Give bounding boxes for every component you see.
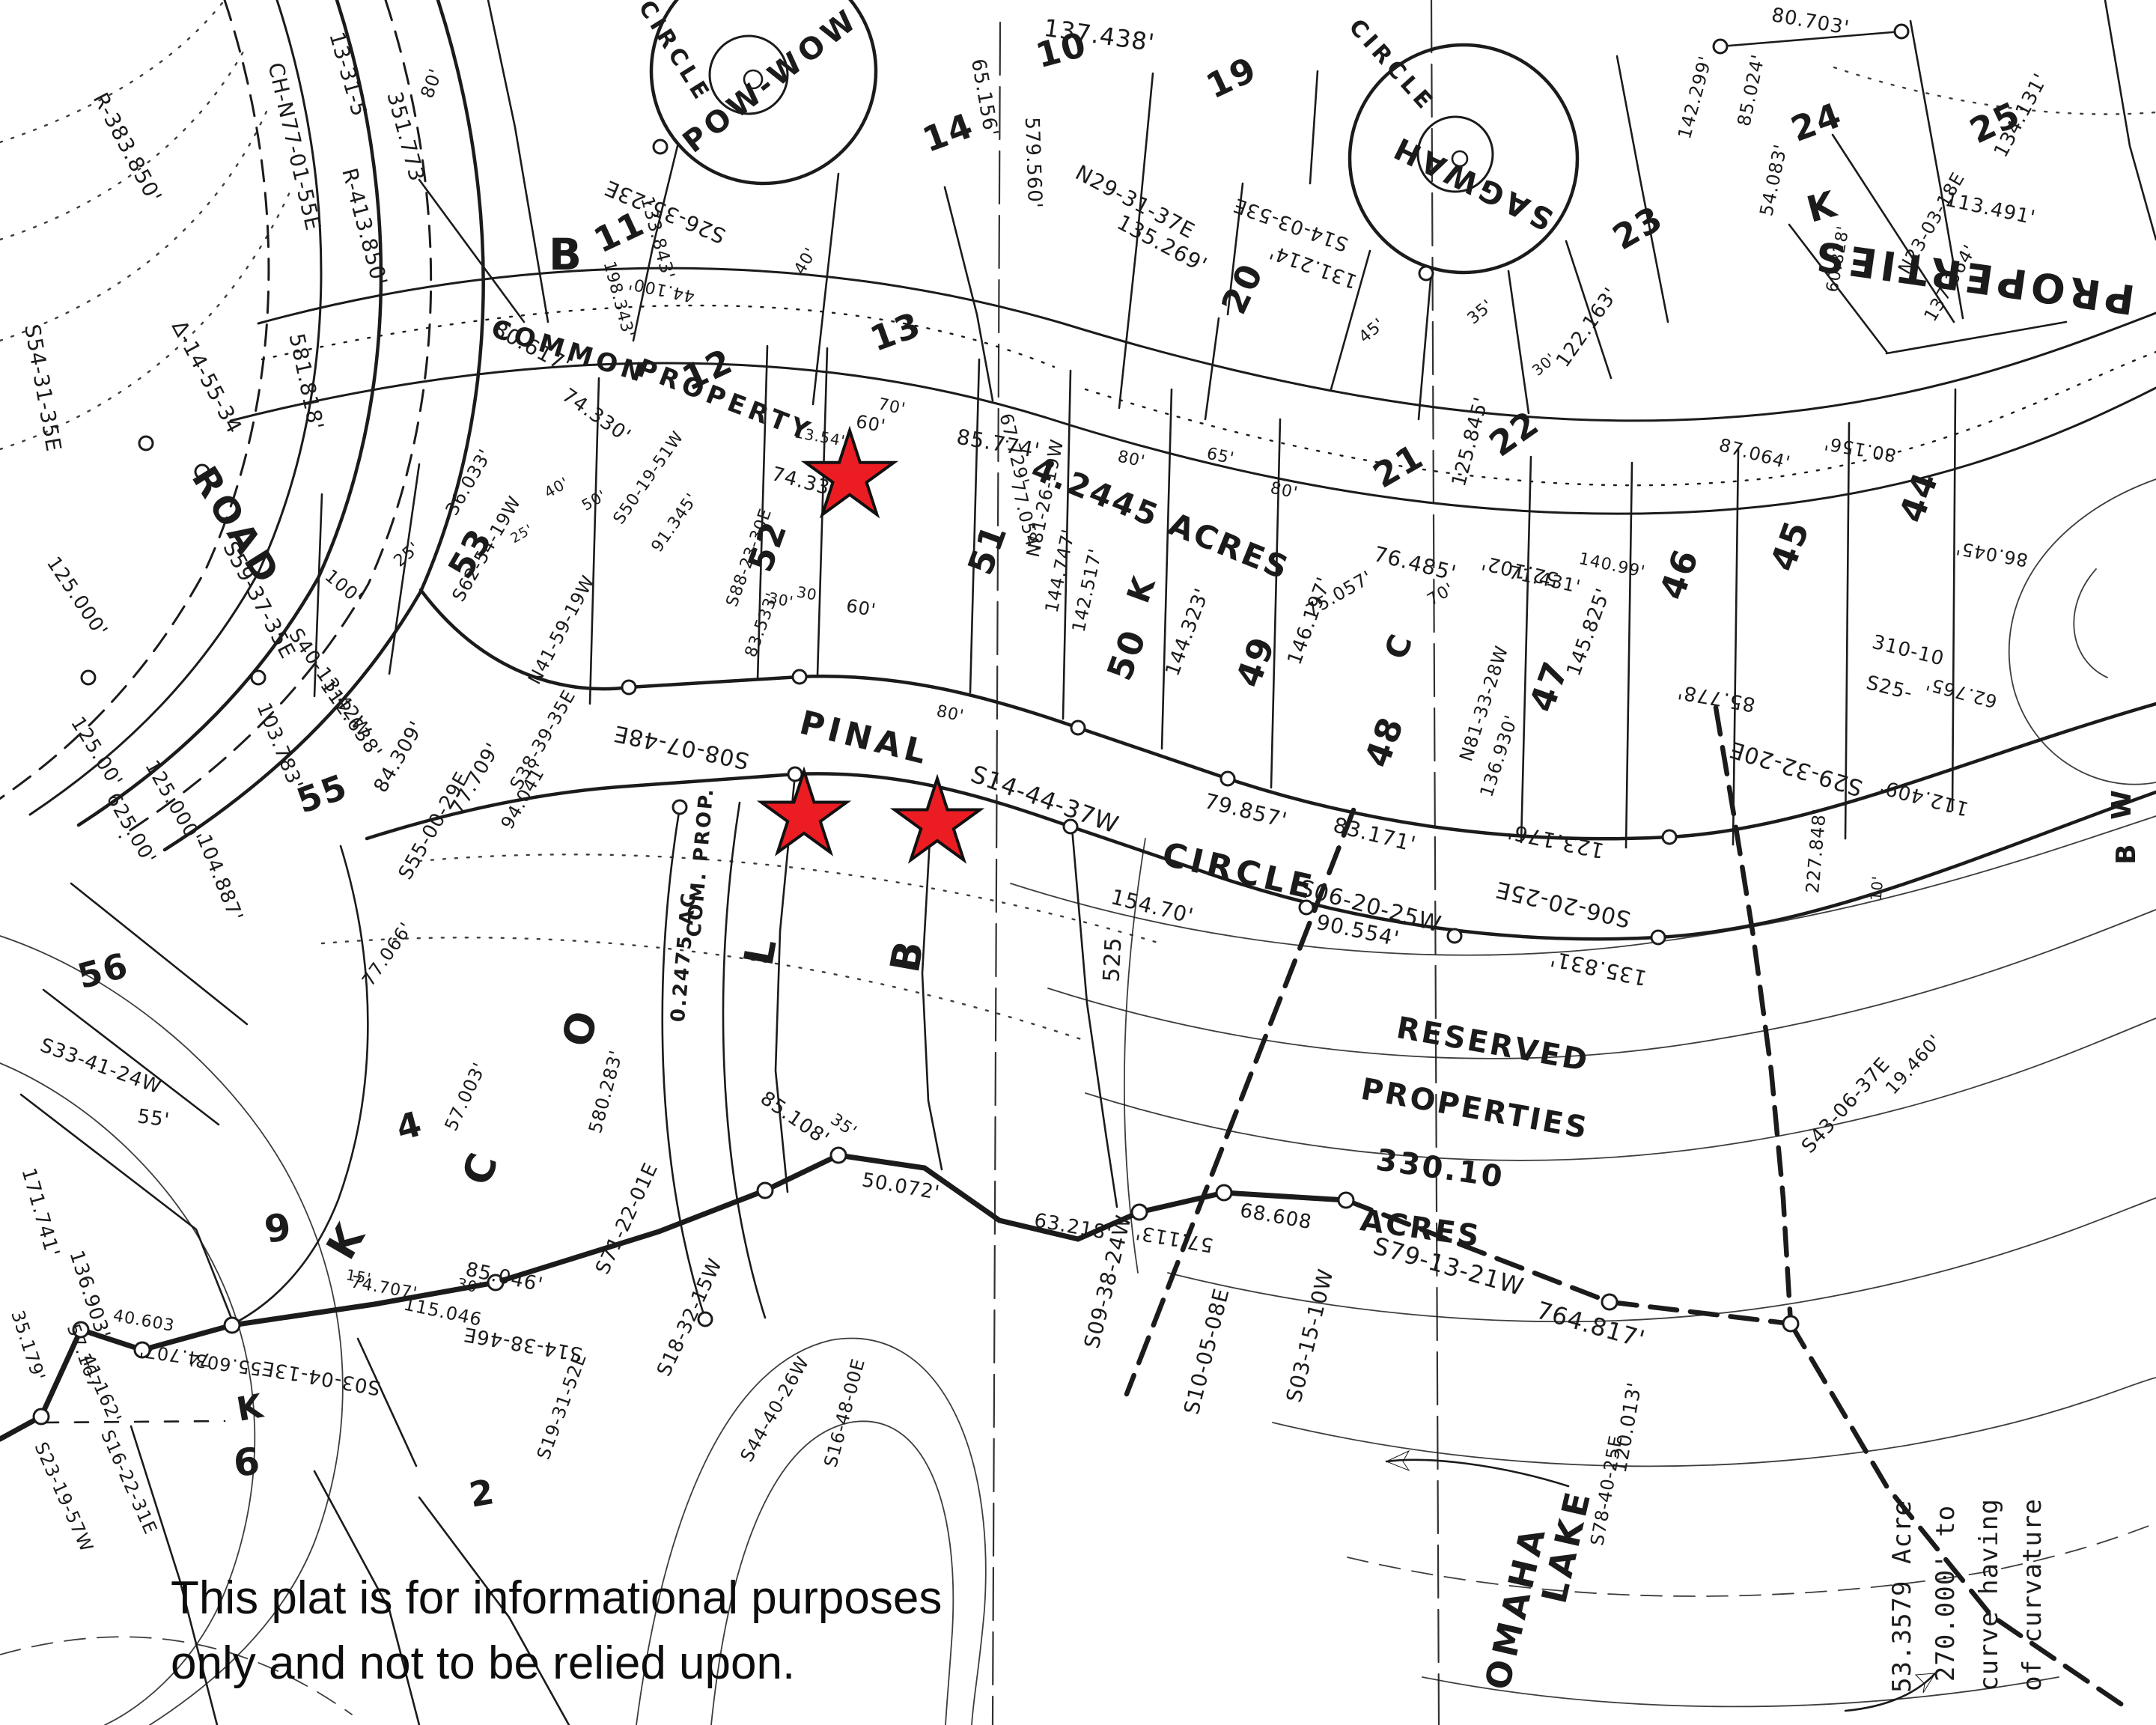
bearing-label: 580.283' [585, 1047, 627, 1135]
bearing-label: 85.024' [1733, 52, 1769, 128]
street-label: PROPERTIES [1808, 231, 2137, 323]
vertex-circle [139, 436, 153, 450]
lot-label: 13 [865, 304, 926, 359]
contour [322, 937, 1085, 1041]
lot-label: 6 [232, 1440, 264, 1485]
block-label: K [234, 1387, 267, 1429]
bearing-label: 144.323' [1161, 585, 1213, 679]
disclaimer-text: This plat is for informational purposes … [171, 1566, 1106, 1697]
bearing-label: 50' [579, 486, 609, 514]
bearing-label: 154.70' [1109, 884, 1196, 928]
lot-line [1205, 318, 1219, 419]
common-property-corridor [231, 268, 2156, 514]
bearing-label: 198.343' [600, 259, 638, 340]
bearing-label: 30' [795, 582, 823, 605]
street-label: CIRCLE [633, 0, 716, 107]
bearing-label: R-383.850' [88, 88, 167, 207]
vertex-circle [1783, 1316, 1798, 1331]
bearing-label: 84.309' [370, 717, 429, 797]
lot-label: 9 [261, 1205, 296, 1253]
bearing-label: 13-31-5 [324, 29, 372, 120]
lot-line [1271, 419, 1280, 788]
bearing-label: S14-38-46E [462, 1322, 585, 1365]
star-markers [761, 431, 980, 860]
bearing-label: 122.163' [1552, 284, 1623, 372]
lot-label: 45 [1762, 514, 1818, 576]
bearing-label: 80.156' [1822, 433, 1898, 466]
lot-label: 14 [917, 105, 978, 160]
vertex-circle [831, 1148, 846, 1163]
street-label: PINAL [796, 704, 934, 773]
culdesac-sagwah [1350, 45, 1577, 273]
bearing-label: 227.848' [1802, 807, 1830, 894]
lot-line [723, 803, 765, 1318]
vertex-circle [1132, 1205, 1147, 1220]
bearing-label: 35.179' [7, 1308, 49, 1384]
bearing-label: 45' [1356, 315, 1389, 347]
block-label: C [1377, 628, 1420, 664]
disclaimer-line-2: only and not to be relied upon. [171, 1631, 1106, 1697]
vertex-circle [622, 681, 636, 694]
vertex-circle [673, 800, 686, 814]
bearing-label: 10' [1867, 874, 1887, 901]
bearing-label: S43-06-37E [1797, 1053, 1895, 1158]
street-label: SAGWAH [1385, 128, 1559, 237]
bearing-label: 83.533' [742, 590, 782, 660]
block-label: L [735, 934, 786, 969]
contour [419, 854, 1160, 943]
bearing-label: 125.000' [42, 553, 112, 641]
block-label: K [317, 1215, 375, 1268]
lot-line [1720, 31, 1901, 46]
arrow-line [1386, 1460, 1568, 1486]
lot-label: 51 [960, 518, 1015, 579]
culdesac-ring [1350, 45, 1577, 273]
bearing-label: 13.54' [793, 423, 847, 450]
area-label: PROPERTIES [1359, 1072, 1592, 1146]
bearing-label: S19-31-52E [533, 1350, 591, 1462]
street-label: CIRCLE [1344, 14, 1440, 118]
lot-line [1508, 271, 1529, 413]
star-marker [895, 779, 980, 860]
bearing-label: 80' [416, 66, 446, 101]
typed-label: of curvature [2018, 1498, 2047, 1691]
lot-label: 44 [1891, 466, 1946, 527]
bearing-label: CH-N77-01-55E [263, 60, 326, 233]
lot-label: 48 [1356, 711, 1412, 772]
bearing-label: 77.066' [358, 918, 417, 990]
bearing-label: 91.345' [648, 490, 702, 556]
bearing-label: Δ-14-55-34 [167, 316, 247, 437]
vertex-circle [225, 1318, 240, 1333]
bearing-label: S33-41-24W [37, 1034, 165, 1098]
lot-line [1310, 71, 1318, 183]
bearing-label: 625.00' [102, 789, 161, 868]
bearing-label: 19.460' [1881, 1030, 1946, 1098]
bearing-label: S71-22-01E [591, 1159, 663, 1278]
bearing-label: 62.765' [1923, 673, 2000, 712]
vertex-circle [1651, 931, 1665, 944]
contour [1048, 910, 2156, 1059]
vertex-circle [1221, 772, 1234, 785]
lot-label: 24 [1785, 94, 1847, 150]
bearing-label: S16-22-31E [97, 1427, 161, 1538]
bearing-label: 65' [1205, 445, 1236, 469]
bearing-label: S16-48-00E [820, 1356, 869, 1470]
typed-label: 270.000' to [1931, 1505, 1961, 1682]
vertex-circle [654, 140, 667, 153]
bearing-label: S06-20-25E [1493, 875, 1633, 932]
lot-label: 56 [73, 945, 133, 997]
vertex-circle [1895, 25, 1908, 38]
bearing-label: 80' [935, 702, 966, 726]
block-label: C [453, 1146, 508, 1191]
bearing-label: 54.083' [1755, 142, 1791, 218]
lot-line [419, 180, 524, 322]
vertex-circle [1448, 929, 1461, 943]
block-label: K [1119, 571, 1163, 607]
bearing-label: 60' [854, 411, 887, 437]
lot-line [1617, 56, 1668, 322]
disclaimer-line-1: This plat is for informational purposes [171, 1566, 1106, 1631]
bearing-label: 60' [844, 595, 877, 621]
lot-label: 4 [392, 1103, 427, 1149]
bearing-label: S18-32-15W [653, 1255, 727, 1380]
star-marker [761, 771, 847, 853]
bearing-label: S78-40-25E [1586, 1434, 1627, 1548]
corridor-edge [231, 363, 2156, 514]
block-label: B [549, 229, 583, 280]
vertex-circle [758, 1183, 773, 1198]
lot-line [488, 0, 548, 322]
lot-line [1626, 463, 1632, 848]
block-label: K [1803, 183, 1842, 231]
bearing-label: 25' [391, 539, 424, 571]
bearing-label: S29-32-20E [1726, 735, 1866, 800]
bearing-label: 125.000' [140, 756, 205, 847]
area-label: 0.2475 AC. [667, 880, 701, 1023]
bearing-label: S03-15-10W [1282, 1266, 1339, 1405]
bearing-label: 351.773 [382, 89, 430, 184]
bearing-label: 40.603 [112, 1306, 176, 1336]
vertex-circle [788, 767, 802, 781]
lot-line [358, 1339, 416, 1466]
bearing-label: 310-10 [1870, 631, 1946, 671]
vertex-circle [1602, 1294, 1617, 1309]
street-label: OMAHA [1477, 1521, 1554, 1694]
plat-linework: POW-WOWCIRCLESAGWAHCIRCLEROADPINALCIRCLE… [0, 0, 2156, 1725]
bearing-label: 100' [321, 565, 367, 609]
lot-label: 46 [1651, 543, 1707, 604]
vertex-circle [1216, 1185, 1231, 1200]
bearing-label: 40' [541, 473, 572, 502]
bearing-label: 85.108' [756, 1087, 833, 1151]
bearing-label: 57.113' [1133, 1220, 1215, 1256]
lake-shoreline [2074, 569, 2107, 678]
typed-label: curve having [1974, 1498, 2004, 1691]
bearing-label: S54-31-35E [19, 323, 66, 454]
bearing-label: 112.409' [1877, 774, 1971, 820]
bearing-label: 55' [136, 1105, 171, 1132]
bearing-label: 57.003' [440, 1059, 490, 1134]
lot-label: 2 [466, 1471, 499, 1515]
bearing-label: S10-05-08E [1179, 1286, 1234, 1417]
lot-line [945, 187, 993, 401]
lot-line [1952, 389, 1955, 810]
vertex-circle [34, 1409, 49, 1424]
plat-map: POW-WOWCIRCLESAGWAHCIRCLEROADPINALCIRCLE… [0, 0, 2156, 1725]
bearing-label: 140.99' [1577, 550, 1647, 582]
lot-line [1886, 322, 2066, 353]
lot-line [21, 1095, 234, 1324]
bearing-label: 171.741' [16, 1166, 64, 1260]
bearing-label: 525 [1098, 936, 1127, 982]
bearing-label: 80.703' [1770, 4, 1851, 40]
bearing-label: 123.176' [1505, 818, 1606, 863]
lot-label: 21 [1366, 436, 1431, 496]
block-label: B [881, 936, 934, 976]
lake-shoreline [2009, 479, 2156, 785]
lot-line [1419, 271, 1431, 419]
bearing-label: 104.887' [192, 832, 248, 925]
lot-label: 50 [1099, 624, 1154, 685]
section-line [1431, 0, 1439, 1725]
bearing-label: 41.162' [77, 1351, 126, 1426]
bearing-label: R-413.850' [337, 165, 392, 289]
bearing-label: S08-07-48E [611, 719, 751, 774]
bearing-label: 15' [344, 1265, 373, 1288]
block-label: B [2111, 842, 2142, 864]
street-label: CIRCLE [1159, 836, 1320, 908]
bearing-label: 76.485' [1371, 541, 1459, 585]
lot-label: 22 [1482, 402, 1547, 464]
bearing-label: 145.825' [1562, 585, 1615, 679]
lot-label: 23 [1606, 198, 1670, 258]
bearing-label: 125.00' [66, 713, 127, 791]
bearing-label: S03-04-13E [260, 1356, 383, 1399]
vertex-circle [82, 671, 95, 684]
vertex-circle [252, 671, 265, 684]
bearing-label: 135.831' [1547, 946, 1648, 991]
vertex-circle [1663, 830, 1676, 844]
bearing-label: 36.033' [442, 445, 496, 520]
bearing-label: 80' [1116, 448, 1147, 472]
boundary-line [0, 1155, 1346, 1439]
bearing-label: 83.171' [1331, 812, 1419, 857]
lot-line [1162, 389, 1172, 749]
bearing-label: 86.045' [1954, 538, 2029, 571]
bearing-label: 68.608 [1238, 1199, 1314, 1234]
lot-line [1072, 828, 1117, 1207]
bearing-label: 579.560' [1020, 117, 1046, 210]
bearing-label: 87.064' [1717, 434, 1793, 473]
bearing-label: 35' [1464, 296, 1497, 329]
k-dash-mark [45, 1421, 225, 1423]
bearing-label: 113.491' [1943, 189, 2038, 230]
typed-label: 53.3579 Acre [1887, 1500, 1917, 1693]
lot-line [1521, 457, 1531, 842]
area-label: 330.10 [1374, 1143, 1506, 1195]
vertex-circle [1419, 267, 1433, 280]
bearing-label: 142.517' [1068, 547, 1106, 634]
vertex-circle [1714, 40, 1727, 53]
vertex-circle [793, 670, 806, 684]
lot-label: 20 [1213, 257, 1272, 320]
bearing-label: 125.845' [1448, 395, 1493, 489]
boundary-line-dashed [1716, 708, 1791, 1324]
lake-arrows [1386, 1451, 1935, 1711]
bearing-label: 115.046 [402, 1293, 484, 1330]
lot-label: 19 [1200, 49, 1263, 107]
bearing-label: S25- [1864, 672, 1915, 705]
vertex-circle [1071, 721, 1085, 734]
bearing-label: 35' [826, 1110, 860, 1142]
block-label: O [553, 1005, 608, 1052]
section-line [993, 22, 1000, 1725]
lot-line [922, 800, 942, 1169]
bearing-label: N41-59-19W [524, 572, 599, 688]
bearing-label: 142.299' [1674, 53, 1717, 141]
bearing-label: S23-19-57W [30, 1439, 97, 1556]
bearing-label: 55.603' [188, 1348, 264, 1379]
vertex-circle [1339, 1193, 1353, 1208]
area-label: RESERVED [1394, 1011, 1592, 1079]
lot-line [2105, 0, 2156, 240]
block-label: W [2107, 788, 2137, 820]
